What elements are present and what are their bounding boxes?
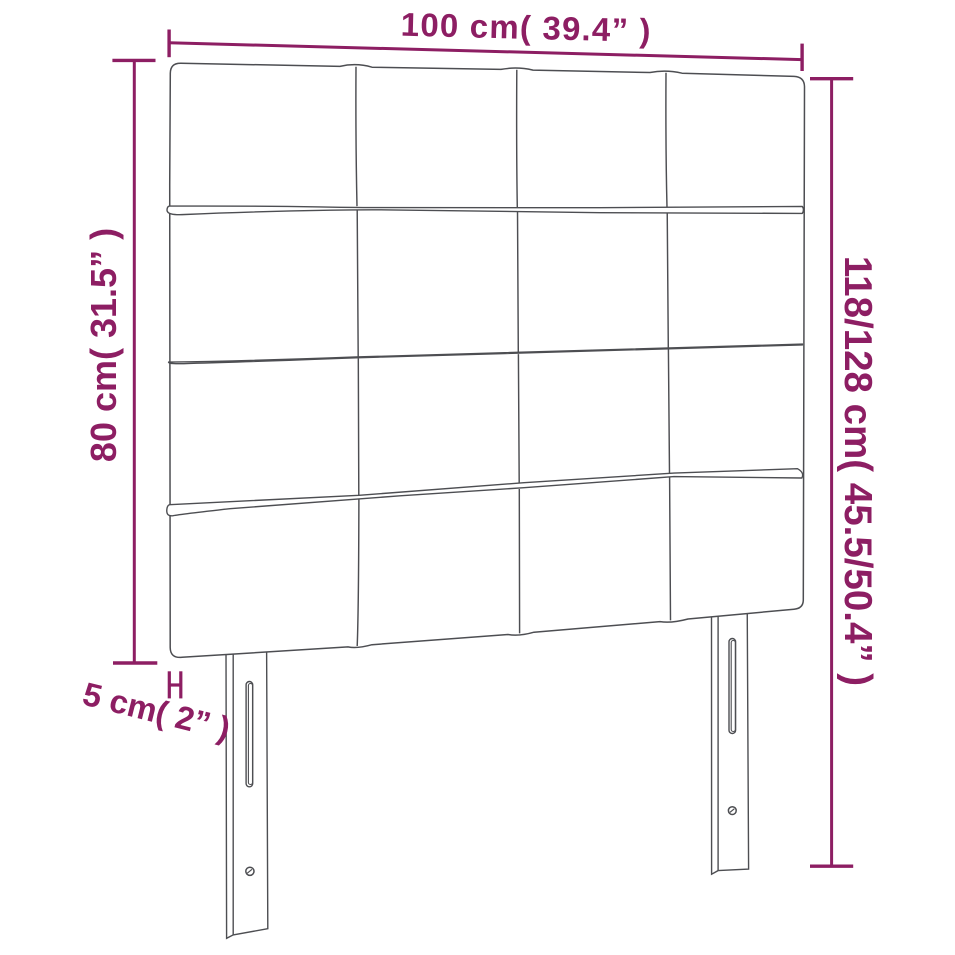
svg-text:100 cm( 39.4” ): 100 cm( 39.4” ): [400, 6, 652, 49]
svg-text:118/128 cm( 45.5/50.4” ): 118/128 cm( 45.5/50.4” ): [836, 256, 879, 686]
svg-text:80 cm( 31.5” ): 80 cm( 31.5” ): [83, 228, 124, 462]
